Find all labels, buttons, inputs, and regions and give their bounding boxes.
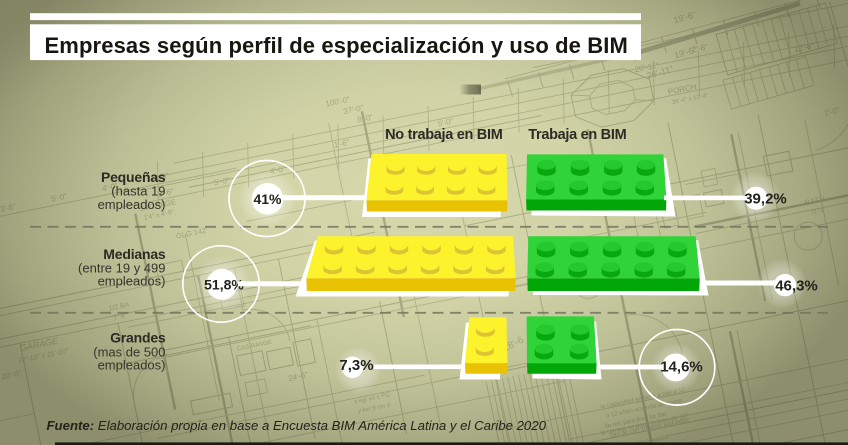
svg-text:14,6%: 14,6%: [660, 359, 703, 376]
svg-text:46,3%: 46,3%: [775, 277, 818, 294]
svg-text:Empresas según perfil de espec: Empresas según perfil de especialización…: [45, 33, 628, 58]
svg-text:Fuente: Elaboración propia en: Fuente: Elaboración propia en base a Enc…: [47, 418, 547, 433]
svg-text:empleados): empleados): [98, 274, 166, 289]
svg-text:empleados): empleados): [98, 358, 166, 373]
svg-text:7,3%: 7,3%: [339, 357, 373, 374]
svg-text:empleados): empleados): [98, 197, 166, 212]
svg-text:No trabaja en BIM: No trabaja en BIM: [385, 127, 503, 143]
svg-text:41%: 41%: [253, 191, 282, 207]
svg-text:39,2%: 39,2%: [744, 191, 787, 208]
svg-text:Trabaja en BIM: Trabaja en BIM: [528, 127, 626, 143]
svg-text:Grandes: Grandes: [110, 329, 166, 345]
svg-text:Pequeñas: Pequeñas: [101, 169, 166, 185]
